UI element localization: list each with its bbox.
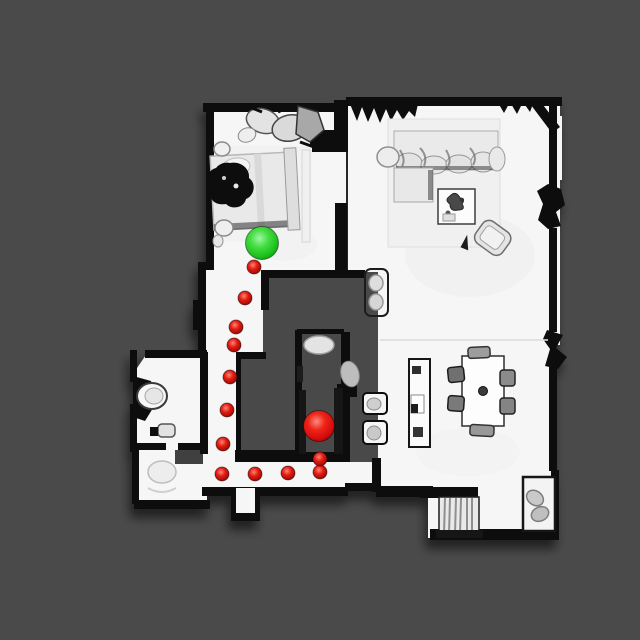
sink-basin-inner [145, 388, 163, 404]
dining-table-center [479, 387, 488, 396]
wardrobe-line [302, 150, 310, 242]
laundry-doorway-shadow [175, 450, 203, 464]
laundry-bottom-wall [134, 500, 210, 509]
sofa-arm-shadow [428, 170, 433, 200]
dining-chair-left-b [447, 395, 464, 411]
waypoint-dot-3 [229, 320, 243, 334]
darkblock-step-left [236, 352, 241, 458]
floorplan-3d-scan [0, 0, 640, 640]
dining-bottom-wall-b [376, 486, 433, 497]
waypoint-dot-11 [313, 465, 327, 479]
waypoint-dot-5 [223, 370, 237, 384]
toilet [158, 424, 175, 437]
right-wall-a [549, 101, 557, 189]
island-edge-right [334, 388, 343, 454]
waypoint-dot-10 [281, 466, 295, 480]
stool-b-seat [367, 426, 381, 440]
stove-burner-a [369, 275, 383, 291]
darkblock-top-wall [261, 270, 365, 278]
hall-stub-cutout [236, 488, 255, 496]
stub-bottom-wall [231, 513, 260, 521]
counter-mark-d [413, 427, 423, 437]
waypoint-dot-9 [248, 467, 262, 481]
waypoint-dot-12 [313, 452, 327, 466]
waypoint-dot-8 [215, 467, 229, 481]
washer [148, 461, 176, 483]
goal-marker [304, 411, 335, 442]
nightstand-c [213, 235, 223, 247]
island-sink [304, 336, 334, 354]
dining-floor-shade [416, 428, 520, 476]
viewer-canvas [0, 0, 640, 640]
dining-chair-right-b [500, 398, 515, 414]
apartment-map [130, 97, 567, 540]
stairs-bottom-edge [436, 530, 483, 538]
dining-chair-bottom [470, 424, 495, 436]
darkblock-left-wall [261, 270, 269, 310]
laundry-left-wall [132, 446, 139, 504]
darkblock-bottom-wall [235, 450, 305, 462]
waypoint-dot-6 [220, 403, 234, 417]
counter-mark-a [412, 366, 421, 374]
waypoint-dot-1 [247, 260, 261, 274]
dining-chair-left-a [447, 366, 464, 383]
waypoint-dot-2 [238, 291, 252, 305]
start-marker [246, 227, 279, 260]
sofa-left-arm [394, 168, 433, 202]
bath-door-gap [166, 443, 178, 450]
plant-highlight-b [222, 176, 226, 180]
nightstand-a [214, 142, 230, 156]
hall-dining-divider [372, 458, 381, 492]
bath-corridor-wall [200, 352, 208, 454]
table-tray [443, 214, 455, 221]
plant-highlight-a [234, 184, 239, 189]
stove-burner-b [369, 294, 383, 310]
mid-vert-wall [335, 203, 347, 277]
toilet-mark [150, 427, 158, 436]
waypoint-dot-7 [216, 437, 230, 451]
right-wall-b [549, 228, 557, 332]
counter-mark-c [411, 404, 418, 413]
right-wall-c [549, 367, 557, 471]
waypoint-dot-4 [227, 338, 241, 352]
table-plant-dot-b [460, 198, 464, 202]
sofa-right-arm [489, 147, 505, 171]
island-top-wall [297, 329, 344, 334]
nightstand-b [215, 220, 233, 236]
bath-top-wall [145, 350, 207, 358]
sofa-ottoman [377, 147, 399, 167]
dining-chair-right-a [500, 370, 515, 386]
stool-a-seat [367, 398, 381, 410]
island-mark-a [297, 366, 303, 382]
bedroom-top-wall [203, 103, 348, 112]
hall-bottom-wall [202, 487, 348, 496]
corridor-left-bump [193, 300, 201, 330]
dining-chair-top [468, 346, 491, 358]
